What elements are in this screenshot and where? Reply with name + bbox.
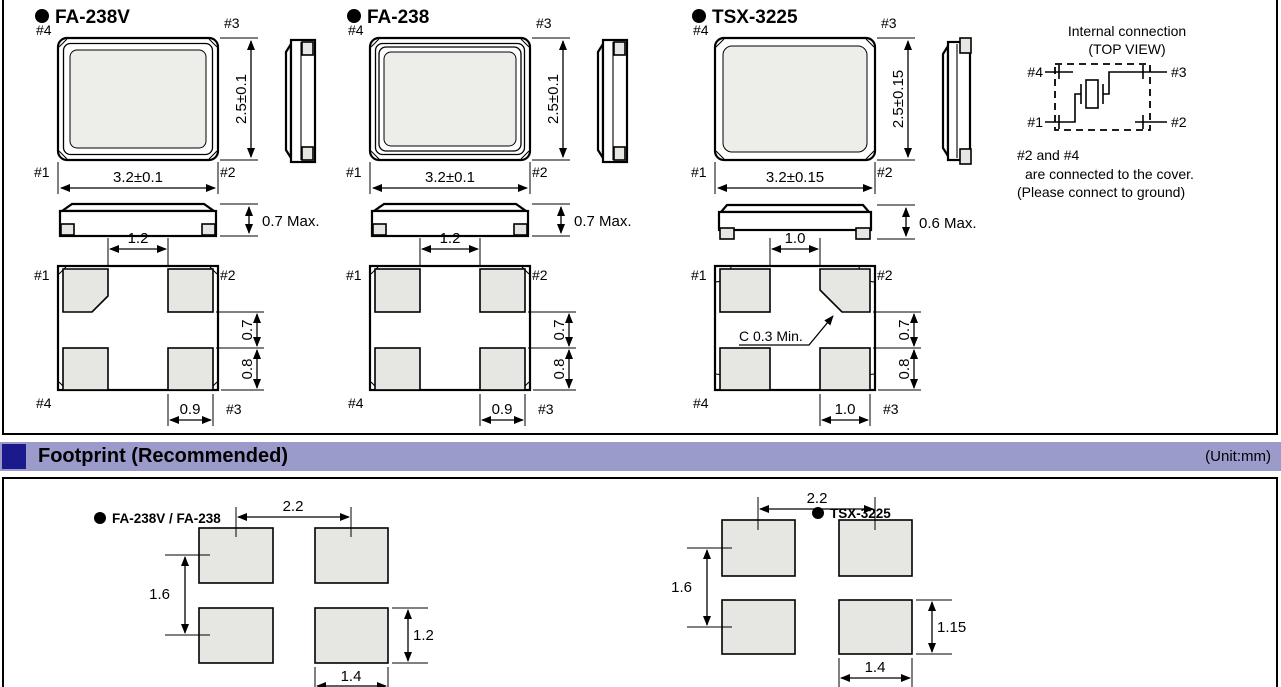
pin-label: #4 (36, 22, 52, 38)
tsx3225-profile-view: 0.6 Max. (719, 205, 977, 239)
pad-width-dim: 1.4 (865, 659, 886, 676)
package-name: FA-238 (367, 7, 429, 28)
pin-label: #2 (1171, 114, 1187, 130)
pin-label: #4 (36, 395, 52, 411)
pad-3 (168, 348, 213, 390)
unit-label: (Unit:mm) (1205, 442, 1271, 471)
crystal-symbol (1045, 72, 1167, 122)
package-name: FA-238V (55, 7, 130, 28)
pad-4 (63, 348, 108, 390)
pad-height-dim: 1.2 (413, 627, 434, 644)
section-title: Footprint (Recommended) (38, 442, 288, 471)
pin-label: #1 (34, 164, 50, 180)
thickness-dim: 0.7 Max. (262, 213, 320, 230)
pad-width-dim: 0.9 (492, 401, 513, 418)
fa238-profile-view: 0.7 Max. (372, 204, 632, 236)
pad-width-dim: 0.9 (180, 401, 201, 418)
pin-label: #1 (1027, 114, 1043, 130)
pin-label: #3 (226, 401, 242, 417)
package-name: TSX-3225 (712, 7, 798, 28)
pin-label: #1 (691, 267, 707, 283)
pin-label: #2 (220, 267, 236, 283)
pin-label: #4 (1027, 64, 1043, 80)
pin-label: #4 (693, 22, 709, 38)
pin-label: #2 (532, 164, 548, 180)
pad-width-dim: 1.0 (835, 401, 856, 418)
pin-leads (1045, 65, 1167, 129)
height-dim: 2.5±0.1 (233, 74, 250, 124)
top-gap-dim: 1.0 (785, 230, 806, 247)
pad-height-dim: 0.8 (239, 359, 256, 380)
pad-3 (820, 348, 870, 390)
pin-label: #2 (877, 267, 893, 283)
pin-label: #2 (532, 267, 548, 283)
pin-label: #3 (536, 15, 552, 31)
thickness-dim: 0.6 Max. (919, 215, 977, 232)
external-dimensions-panel: FA-238V #4 #3 #1 #2 2.5±0.1 3.2±0.1 (2, 0, 1278, 435)
top-view-subtitle: (TOP VIEW) (1088, 41, 1165, 57)
package-diagram-tsx3225: TSX-3225 #4 #3 #1 #2 2.5±0.15 3.2±0.15 (687, 0, 1017, 432)
pad-height-dim: 0.8 (896, 359, 913, 380)
fa238-bottom-view: #1 #2 #4 #3 1.2 0.7 0.8 0.9 (346, 230, 576, 426)
pin-label: #2 (220, 164, 236, 180)
svg-text:TSX-3225: TSX-3225 (830, 506, 891, 521)
cover-note-line2: are connected to the cover. (1025, 166, 1194, 182)
internal-connection-diagram: Internal connection (TOP VIEW) #4 #3 #1 … (987, 0, 1277, 432)
height-dim: 2.5±0.1 (545, 74, 562, 124)
footprint-diagram-fa238: FA-238V / FA-238 2.2 1.6 1.2 1.4 (60, 482, 540, 687)
tsx3225-top-view: #4 #3 #1 #2 2.5±0.15 3.2±0.15 (691, 15, 915, 194)
pin-label: #1 (346, 164, 362, 180)
footprint-section-header: Footprint (Recommended) (Unit:mm) (0, 442, 1281, 471)
package-lid (70, 50, 206, 148)
gap-dim: 0.7 (239, 320, 256, 341)
fa238-side-view (598, 40, 627, 162)
footprint-pad (839, 600, 912, 654)
footprint-pad (315, 608, 388, 663)
bullet-icon (35, 9, 49, 23)
pin-label: #4 (348, 395, 364, 411)
footprint-pad (722, 600, 795, 654)
tsx3225-bottom-view: #1 #2 #4 #3 C 0.3 Min. 1.0 0.7 0.8 1.0 (691, 230, 921, 426)
pad-width-dim: 1.4 (341, 668, 362, 685)
fa238v-bottom-view: #1 #2 #4 #3 1.2 0.7 0.8 0.9 (34, 230, 264, 426)
width-dim: 3.2±0.15 (766, 169, 824, 186)
package-lid (723, 46, 867, 152)
fa238v-profile-view: 0.7 Max. (60, 204, 320, 236)
pad-height-dim: 0.8 (551, 359, 568, 380)
tsx3225-side-view (943, 38, 971, 164)
footprint-label: TSX-3225 (812, 506, 891, 521)
pin-label: #4 (693, 395, 709, 411)
pad-3 (480, 348, 525, 390)
pin-label: #1 (34, 267, 50, 283)
gap-dim: 0.7 (551, 320, 568, 341)
footprint-label: FA-238V / FA-238 (94, 511, 221, 526)
pad-4 (375, 348, 420, 390)
width-dim: 3.2±0.1 (425, 169, 475, 186)
gap-dim: 0.7 (896, 320, 913, 341)
pad-4 (720, 348, 770, 390)
v-pitch-dim: 1.6 (671, 579, 692, 596)
pad-1 (375, 269, 420, 312)
pin-label: #3 (1171, 64, 1187, 80)
thickness-dim: 0.7 Max. (574, 213, 632, 230)
bullet-icon (692, 9, 706, 23)
footprint-pad (199, 608, 273, 663)
h-pitch-dim: 2.2 (807, 490, 828, 507)
bullet-icon (347, 9, 361, 23)
top-gap-dim: 1.2 (128, 230, 149, 247)
pin-label: #2 (877, 164, 893, 180)
h-pitch-dim: 2.2 (283, 498, 304, 515)
section-marker-square (2, 444, 26, 469)
package-diagram-fa238v: FA-238V #4 #3 #1 #2 2.5±0.1 3.2±0.1 (30, 0, 360, 432)
pin-label: #1 (346, 267, 362, 283)
package-lid (384, 52, 516, 146)
width-dim: 3.2±0.1 (113, 169, 163, 186)
footprint-diagram-tsx3225: TSX-3225 2.2 1.6 1.15 1.4 (622, 482, 1102, 687)
pad-2 (480, 269, 525, 312)
cover-note-line3: (Please connect to ground) (1017, 184, 1185, 200)
pin-label: #1 (691, 164, 707, 180)
internal-connection-title: Internal connection (1068, 23, 1186, 39)
pin-label: #3 (224, 15, 240, 31)
pin-label: #3 (881, 15, 897, 31)
v-pitch-dim: 1.6 (149, 586, 170, 603)
chamfer-note: C 0.3 Min. (739, 328, 803, 344)
pad-height-dim: 1.15 (937, 619, 966, 636)
pin-label: #3 (883, 401, 899, 417)
fa238v-side-view (286, 40, 315, 162)
cover-note-line1: #2 and #4 (1017, 147, 1079, 163)
height-dim: 2.5±0.15 (890, 70, 907, 128)
footprint-panel: FA-238V / FA-238 2.2 1.6 1.2 1.4 TSX-322… (2, 477, 1278, 687)
datasheet-page: FA-238V #4 #3 #1 #2 2.5±0.1 3.2±0.1 (0, 0, 1281, 687)
package-diagram-fa238: FA-238 #4 #3 #1 #2 2.5±0.1 3.2±0.1 (342, 0, 672, 432)
pin-label: #3 (538, 401, 554, 417)
pin-label: #4 (348, 22, 364, 38)
pad-2 (168, 269, 213, 312)
fa238v-top-view: #4 #3 #1 #2 2.5±0.1 3.2±0.1 (34, 15, 258, 194)
top-gap-dim: 1.2 (440, 230, 461, 247)
bullet-icon (94, 512, 106, 524)
pad-1 (720, 269, 770, 312)
fa238-top-view: #4 #3 #1 #2 2.5±0.1 3.2±0.1 (346, 15, 570, 194)
svg-text:FA-238V / FA-238: FA-238V / FA-238 (112, 511, 221, 526)
